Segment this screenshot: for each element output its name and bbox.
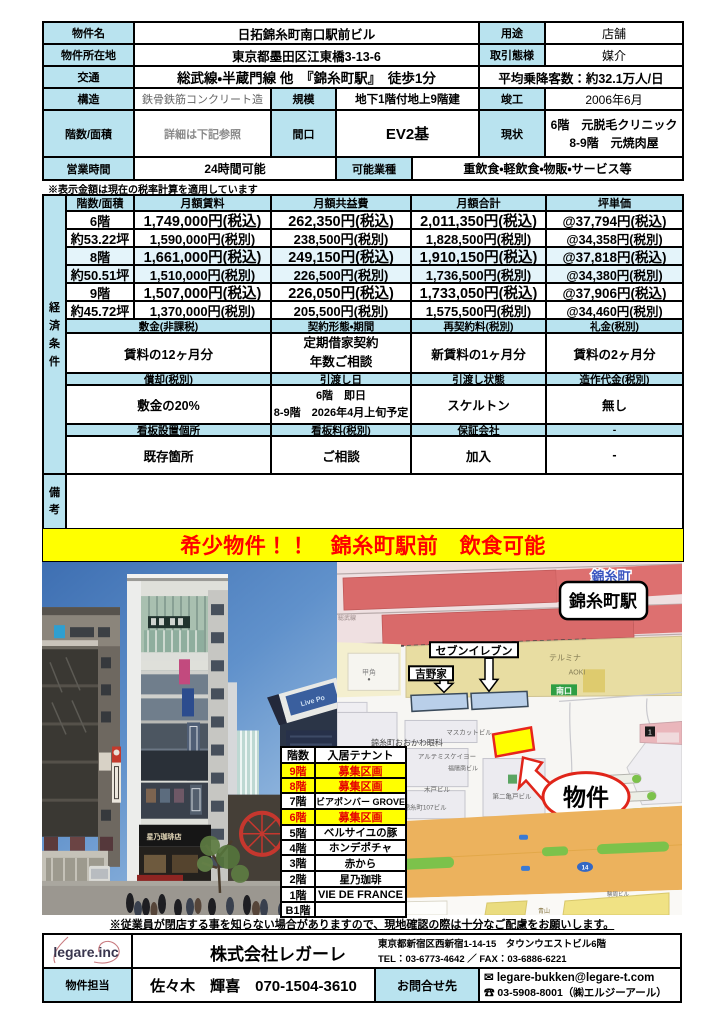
svg-text:テルミナ: テルミナ: [549, 653, 581, 662]
svg-text:星乃珈琲店: 星乃珈琲店: [147, 832, 182, 841]
svg-text:木戸ビル: 木戸ビル: [424, 785, 450, 794]
svg-text:14: 14: [582, 865, 589, 871]
svg-text:セブンイレブン: セブンイレブン: [436, 643, 513, 657]
svg-text:甲角: 甲角: [362, 667, 376, 676]
svg-text:福陽商ビル: 福陽商ビル: [448, 765, 478, 773]
svg-text:験周ビル: 験周ビル: [607, 890, 629, 898]
svg-text:錦糸町107ビル: 錦糸町107ビル: [403, 803, 447, 812]
svg-text:legare.inc: legare.inc: [53, 944, 119, 960]
svg-text:1: 1: [648, 729, 652, 736]
svg-text:AOKI: AOKI: [569, 669, 586, 676]
svg-text:錦糸町駅: 錦糸町駅: [568, 591, 638, 611]
svg-text:吉野家: 吉野家: [415, 667, 447, 680]
svg-text:アルテミスケイヨー: アルテミスケイヨー: [418, 753, 476, 761]
svg-text:総武線: 総武線: [338, 614, 356, 622]
svg-text:物件: 物件: [563, 785, 609, 811]
svg-text:南口: 南口: [556, 685, 572, 695]
svg-text:マスカットビル: マスカットビル: [446, 727, 492, 736]
svg-text:青山: 青山: [538, 907, 550, 915]
svg-text:第二亀戸ビル: 第二亀戸ビル: [493, 792, 532, 801]
